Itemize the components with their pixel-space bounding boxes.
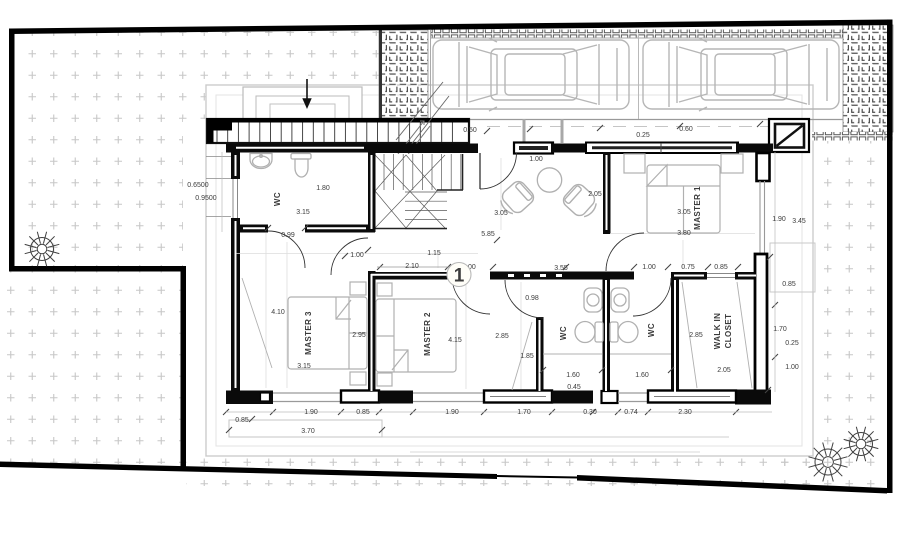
- svg-text:1.15: 1.15: [427, 250, 441, 257]
- svg-text:WC: WC: [273, 192, 282, 206]
- svg-text:1.00: 1.00: [642, 264, 656, 271]
- svg-text:0.75: 0.75: [681, 264, 695, 271]
- svg-text:3.45: 3.45: [792, 218, 806, 225]
- svg-text:2.30: 2.30: [678, 409, 692, 416]
- svg-text:0.30: 0.30: [583, 409, 597, 416]
- svg-text:1.70: 1.70: [517, 409, 531, 416]
- svg-text:3.55: 3.55: [554, 265, 568, 272]
- svg-text:0.9500: 0.9500: [195, 195, 217, 202]
- svg-text:0.25: 0.25: [636, 132, 650, 139]
- svg-text:MASTER 1: MASTER 1: [693, 186, 702, 230]
- svg-text:1.80: 1.80: [316, 185, 330, 192]
- svg-text:3.05: 3.05: [677, 209, 691, 216]
- svg-text:0.6500: 0.6500: [187, 182, 209, 189]
- svg-text:0.50: 0.50: [463, 127, 477, 134]
- svg-text:1.00: 1.00: [529, 156, 543, 163]
- svg-text:0.60: 0.60: [679, 126, 693, 133]
- svg-text:1.60: 1.60: [635, 372, 649, 379]
- svg-text:2.05: 2.05: [717, 367, 731, 374]
- svg-text:1.00: 1.00: [785, 364, 799, 371]
- svg-text:1.00: 1.00: [350, 252, 364, 259]
- svg-text:0.74: 0.74: [624, 409, 638, 416]
- svg-text:2.05: 2.05: [588, 191, 602, 198]
- svg-text:2.85: 2.85: [495, 333, 509, 340]
- svg-text:0.85: 0.85: [714, 264, 728, 271]
- svg-text:4.15: 4.15: [448, 337, 462, 344]
- svg-text:WC: WC: [647, 323, 656, 337]
- svg-text:3.80: 3.80: [677, 230, 691, 237]
- svg-text:0.25: 0.25: [785, 340, 799, 347]
- svg-text:1: 1: [454, 266, 465, 287]
- svg-text:5.85: 5.85: [481, 231, 495, 238]
- svg-text:1.70: 1.70: [773, 326, 787, 333]
- svg-text:MASTER 3: MASTER 3: [304, 311, 313, 355]
- svg-text:MASTER 2: MASTER 2: [423, 312, 432, 356]
- svg-text:1.60: 1.60: [566, 372, 580, 379]
- svg-text:0.99: 0.99: [281, 232, 295, 239]
- svg-text:WC: WC: [559, 326, 568, 340]
- svg-text:CLOSET: CLOSET: [724, 314, 733, 349]
- svg-text:2.95: 2.95: [352, 332, 366, 339]
- svg-text:3.05: 3.05: [494, 210, 508, 217]
- svg-text:0.45: 0.45: [567, 384, 581, 391]
- svg-text:2.10: 2.10: [405, 263, 419, 270]
- svg-text:0.85: 0.85: [782, 281, 796, 288]
- svg-text:3.15: 3.15: [296, 209, 310, 216]
- svg-text:0.85: 0.85: [356, 409, 370, 416]
- svg-text:1.90: 1.90: [445, 409, 459, 416]
- svg-text:1.90: 1.90: [772, 216, 786, 223]
- svg-text:1.90: 1.90: [304, 409, 318, 416]
- svg-text:3.70: 3.70: [301, 428, 315, 435]
- svg-text:0.98: 0.98: [525, 295, 539, 302]
- svg-text:1.85: 1.85: [520, 353, 534, 360]
- svg-text:3.15: 3.15: [297, 363, 311, 370]
- svg-text:4.10: 4.10: [271, 309, 285, 316]
- svg-text:WALK IN: WALK IN: [713, 313, 722, 350]
- svg-text:2.85: 2.85: [689, 332, 703, 339]
- svg-text:0.85: 0.85: [235, 417, 249, 424]
